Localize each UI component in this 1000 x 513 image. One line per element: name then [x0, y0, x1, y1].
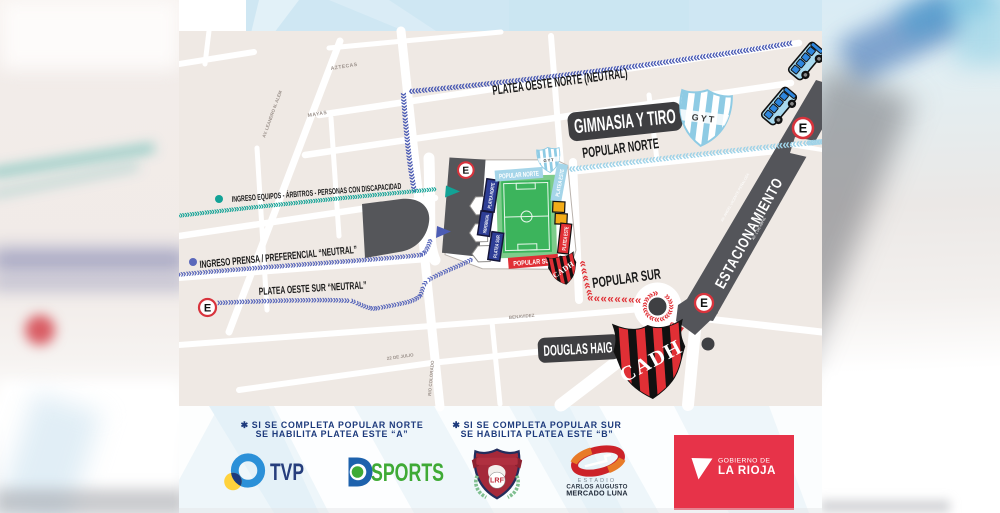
svg-text:TVP: TVP: [270, 459, 304, 486]
svg-text:MERCADO LUNA: MERCADO LUNA: [566, 489, 628, 498]
svg-text:SE HABILITA PLATEA ESTE “A”: SE HABILITA PLATEA ESTE “A”: [256, 429, 409, 439]
svg-text:LRF: LRF: [490, 475, 505, 484]
svg-text:DOUGLAS HAIG: DOUGLAS HAIG: [543, 339, 613, 360]
svg-text:GOBIERNO DE: GOBIERNO DE: [718, 458, 770, 465]
svg-text:LA RIOJA: LA RIOJA: [718, 465, 776, 477]
svg-text:SPORTS: SPORTS: [371, 459, 444, 487]
svg-text:SE HABILITA PLATEA ESTE “B”: SE HABILITA PLATEA ESTE “B”: [461, 429, 614, 439]
